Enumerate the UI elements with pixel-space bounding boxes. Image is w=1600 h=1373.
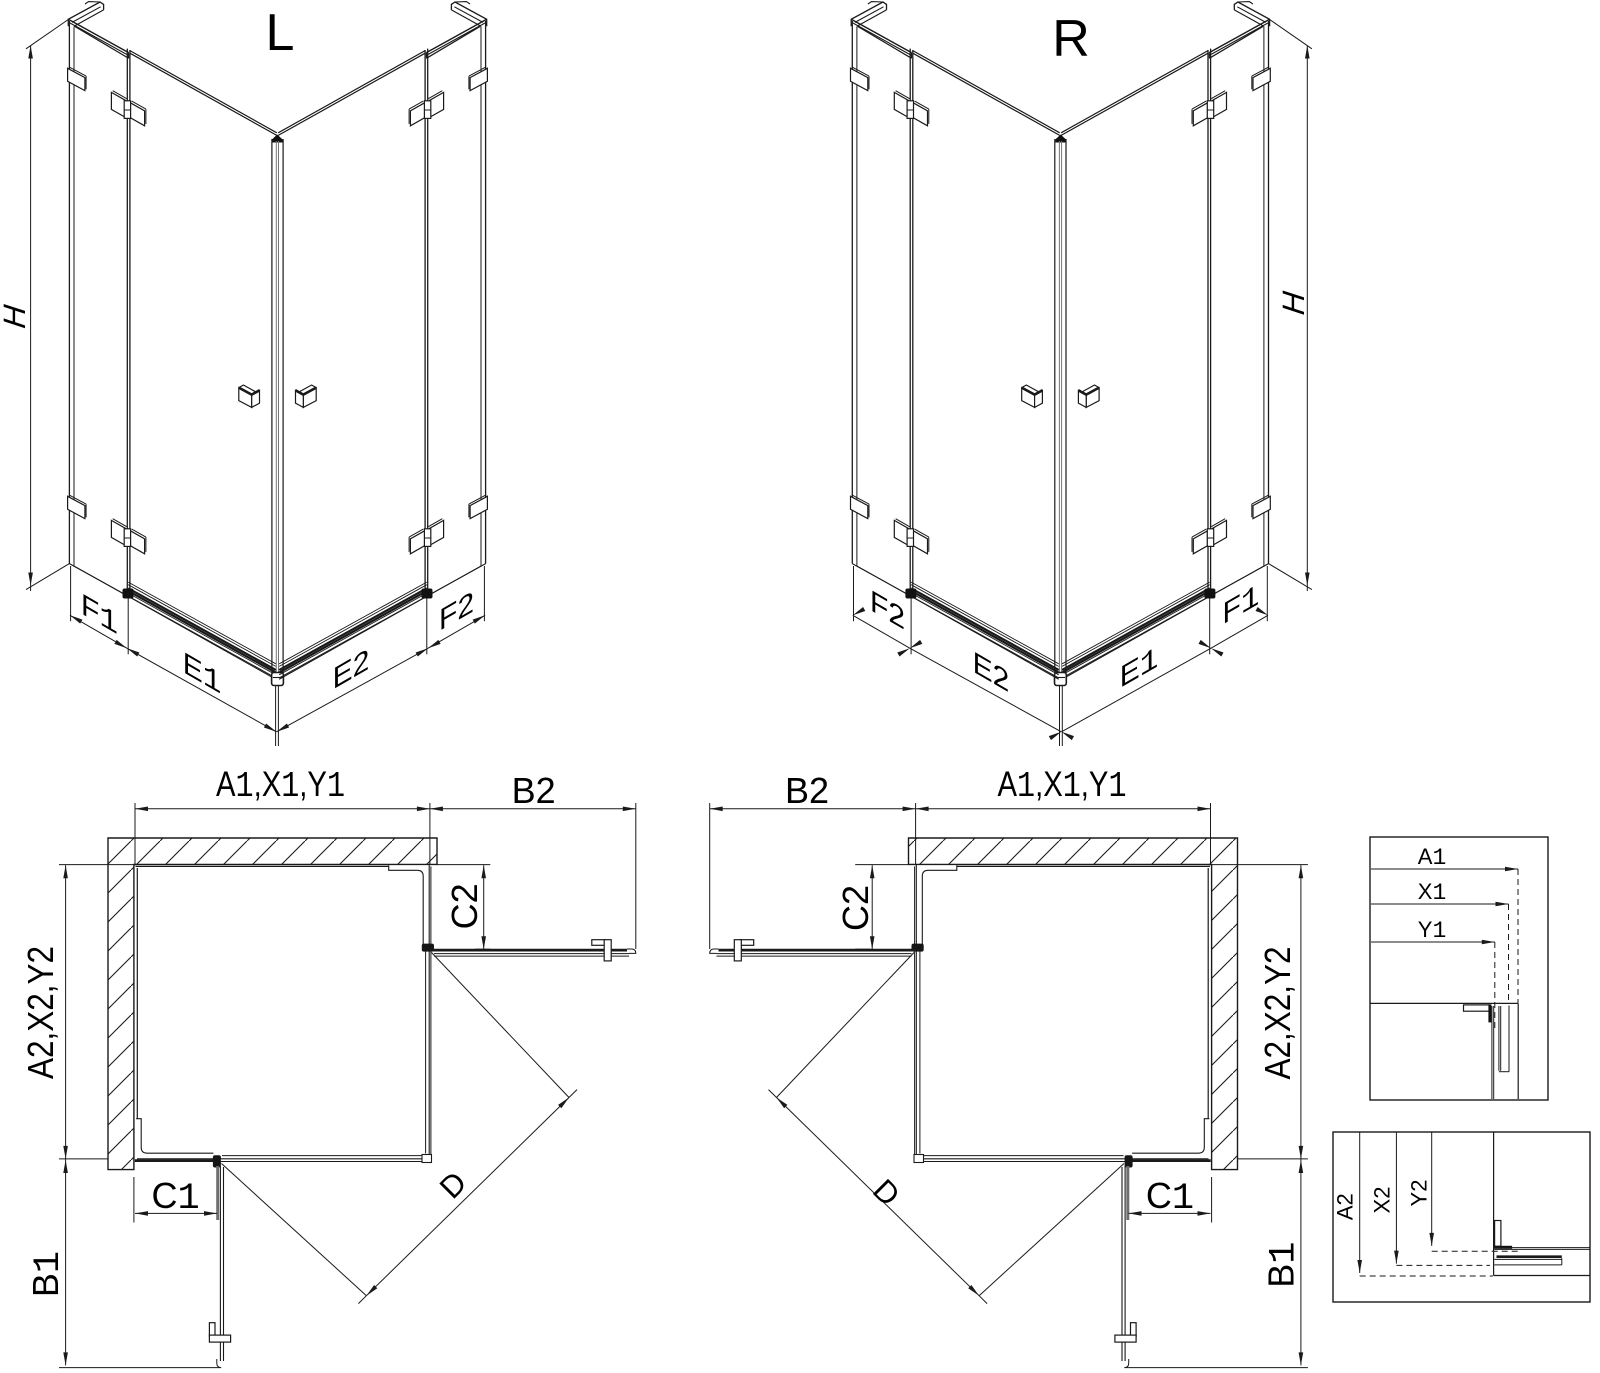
svg-text:B1: B1	[25, 1251, 70, 1297]
svg-text:C2: C2	[444, 883, 485, 929]
svg-text:A2: A2	[1333, 1193, 1358, 1220]
svg-text:R: R	[1052, 10, 1090, 68]
svg-text:C1: C1	[1146, 1175, 1194, 1220]
svg-text:X2: X2	[1370, 1187, 1395, 1214]
svg-text:Y1: Y1	[1418, 917, 1447, 944]
svg-text:A1,X1,Y1: A1,X1,Y1	[216, 765, 345, 807]
svg-text:A1: A1	[1418, 844, 1447, 871]
svg-text:A2,X2,Y2: A2,X2,Y2	[20, 946, 61, 1079]
svg-text:X1: X1	[1418, 879, 1447, 906]
svg-text:B1: B1	[1261, 1241, 1306, 1287]
svg-text:C2: C2	[835, 885, 876, 931]
svg-text:B2: B2	[785, 770, 829, 811]
svg-text:L: L	[266, 4, 295, 62]
svg-text:A1,X1,Y1: A1,X1,Y1	[998, 765, 1127, 807]
svg-text:A2,X2,Y2: A2,X2,Y2	[1257, 947, 1298, 1080]
svg-text:Y2: Y2	[1407, 1180, 1432, 1207]
svg-text:B2: B2	[512, 770, 556, 811]
svg-text:C1: C1	[151, 1175, 199, 1220]
